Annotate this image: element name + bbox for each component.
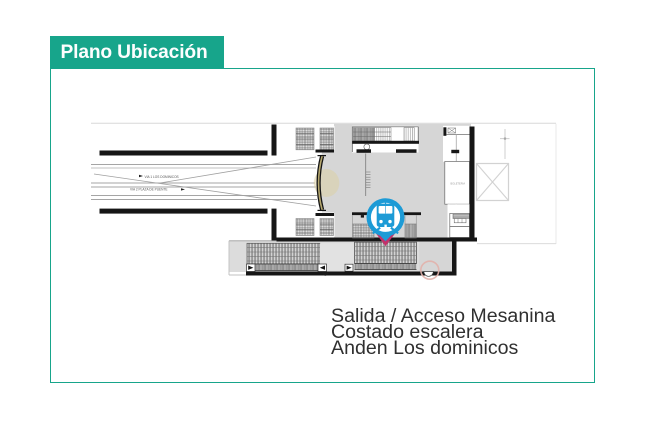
svg-text:VIA 1 LOS DOMINICOS: VIA 1 LOS DOMINICOS	[145, 175, 179, 179]
svg-text:BOLETERIA: BOLETERIA	[451, 181, 466, 185]
svg-text:VIA 2 PLAZA DE PUENTE: VIA 2 PLAZA DE PUENTE	[130, 188, 168, 192]
